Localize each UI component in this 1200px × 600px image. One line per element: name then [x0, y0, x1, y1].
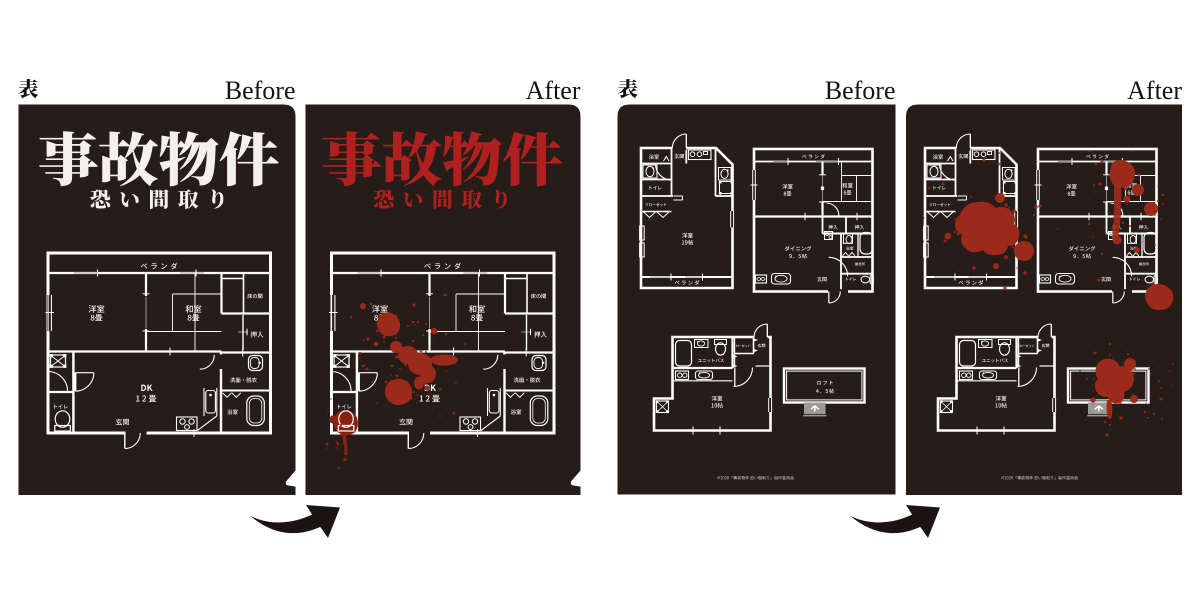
svg-text:Before: Before	[225, 76, 296, 105]
svg-text:After: After	[526, 76, 581, 105]
svg-text:Before: Before	[825, 76, 896, 105]
svg-text:After: After	[1127, 76, 1182, 105]
